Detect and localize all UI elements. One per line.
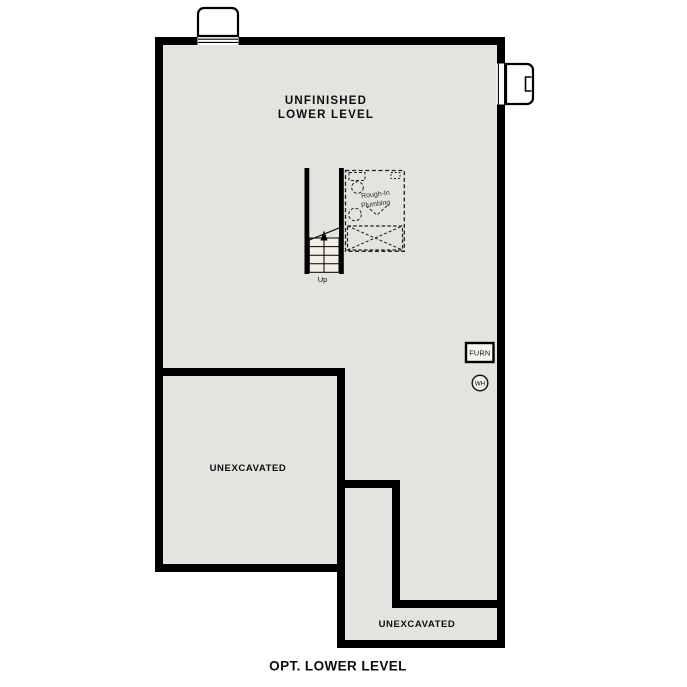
main-room-label-line1: UNFINISHED	[285, 95, 367, 107]
furnace-label: FURN	[469, 349, 490, 358]
floor-plan-drawing: Up Rough-In Plumbing FURN WH	[0, 0, 687, 687]
page-title: OPT. LOWER LEVEL	[269, 659, 407, 674]
up-label: Up	[318, 275, 328, 284]
window-well-top-box	[198, 8, 238, 36]
floor-plan-page: Up Rough-In Plumbing FURN WH	[0, 0, 687, 687]
window-well-top-opening	[198, 36, 239, 45]
water-heater-circle: WH	[472, 375, 488, 391]
window-well-right	[497, 64, 534, 105]
main-room-label-line2: LOWER LEVEL	[278, 109, 374, 121]
unexcavated-left-label: UNEXCAVATED	[210, 463, 287, 474]
window-well-top	[198, 8, 239, 45]
furnace-box: FURN	[466, 343, 494, 362]
unexcavated-bottom-label: UNEXCAVATED	[379, 619, 456, 630]
water-heater-label: WH	[475, 380, 485, 387]
stair-wall-right	[339, 168, 344, 274]
stair-wall-left	[305, 168, 310, 274]
window-well-right-box	[506, 64, 533, 104]
